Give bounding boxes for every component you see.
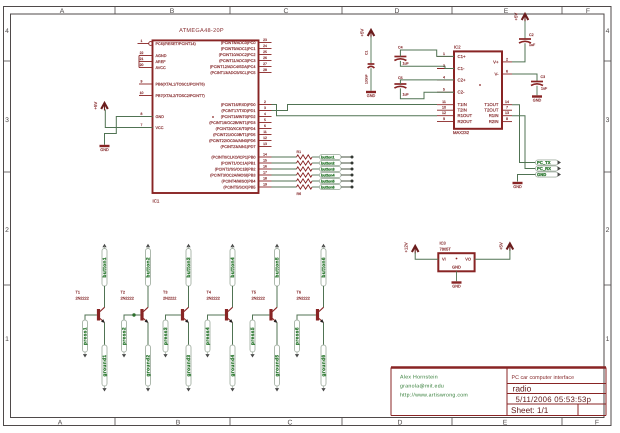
svg-text:1uF: 1uF xyxy=(403,62,410,66)
svg-text:B: B xyxy=(176,419,181,426)
svg-text:radio: radio xyxy=(513,384,532,394)
svg-text:GND: GND xyxy=(100,148,109,152)
svg-text:R1OUT: R1OUT xyxy=(458,113,473,118)
svg-text:12: 12 xyxy=(442,111,446,115)
svg-text:AVCC: AVCC xyxy=(156,66,167,70)
svg-text:C2: C2 xyxy=(529,33,534,37)
svg-text:7: 7 xyxy=(141,123,143,127)
svg-text:6: 6 xyxy=(264,124,266,128)
svg-text:14: 14 xyxy=(505,100,509,104)
svg-text:T1OUT: T1OUT xyxy=(484,102,498,107)
svg-text:8: 8 xyxy=(141,112,143,116)
svg-text:ground5: ground5 xyxy=(275,355,281,377)
svg-text:(PCINT19/OC2B/INT1)PD3: (PCINT19/OC2B/INT1)PD3 xyxy=(209,121,255,125)
svg-text:AGND: AGND xyxy=(156,54,167,58)
svg-text:19: 19 xyxy=(263,183,267,187)
svg-text:24: 24 xyxy=(263,44,267,48)
svg-text:8: 8 xyxy=(506,117,508,121)
svg-text:ground6: ground6 xyxy=(321,355,327,377)
svg-text:button5: button5 xyxy=(275,257,281,277)
svg-text:button4: button4 xyxy=(321,174,335,178)
svg-text:2N2222: 2N2222 xyxy=(163,297,176,301)
svg-text:PC_RX: PC_RX xyxy=(537,166,551,171)
svg-text:4: 4 xyxy=(606,28,610,35)
svg-text:6: 6 xyxy=(506,70,508,74)
svg-text:(PCINT11/ADC3)PC3: (PCINT11/ADC3)PC3 xyxy=(219,59,255,63)
svg-text:1uF: 1uF xyxy=(403,93,410,97)
svg-text:2: 2 xyxy=(264,100,266,104)
svg-text:button2: button2 xyxy=(321,162,335,166)
svg-text:(PCINT0/CLKO/ICP1)PB0: (PCINT0/CLKO/ICP1)PB0 xyxy=(211,155,255,159)
svg-text:1: 1 xyxy=(443,52,445,56)
svg-text:+12V: +12V xyxy=(404,242,409,252)
svg-text:2N2222: 2N2222 xyxy=(121,297,134,301)
svg-text:V+: V+ xyxy=(493,59,499,64)
svg-text:GND: GND xyxy=(156,115,165,119)
svg-text:2: 2 xyxy=(5,227,9,234)
svg-text:ground1: ground1 xyxy=(102,355,108,377)
svg-text:(PCINT5/SCK)PB5: (PCINT5/SCK)PB5 xyxy=(223,185,255,189)
svg-text:T1IN: T1IN xyxy=(458,102,467,107)
svg-text:C: C xyxy=(288,419,293,426)
svg-text:13: 13 xyxy=(263,142,267,146)
svg-text:10: 10 xyxy=(442,106,446,110)
svg-text:ground3: ground3 xyxy=(186,355,192,377)
svg-text:MAX232: MAX232 xyxy=(453,130,470,135)
svg-text:10: 10 xyxy=(140,91,144,95)
svg-text:PC car computer interface: PC car computer interface xyxy=(512,375,575,381)
svg-text:button3: button3 xyxy=(321,168,335,172)
svg-text:25: 25 xyxy=(263,50,267,54)
svg-text:(PCINT22/OC0A/AIN0)PD6: (PCINT22/OC0A/AIN0)PD6 xyxy=(209,139,255,143)
svg-text:(PCINT1/OC1A)PB1: (PCINT1/OC1A)PB1 xyxy=(221,161,256,165)
svg-text:PB6(XTAL1/TOSC1/PCINT6): PB6(XTAL1/TOSC1/PCINT6) xyxy=(156,82,206,86)
svg-text:(PCINT2/SS/OC1B)PB2: (PCINT2/SS/OC1B)PB2 xyxy=(215,167,256,171)
svg-text:AREF: AREF xyxy=(156,60,167,64)
svg-text:15: 15 xyxy=(263,159,267,163)
svg-text:C: C xyxy=(284,8,289,15)
svg-text:GND: GND xyxy=(533,99,542,103)
svg-text:(PCINT4/MISO)PB4: (PCINT4/MISO)PB4 xyxy=(222,179,256,183)
svg-text:button6: button6 xyxy=(321,257,327,277)
svg-text:13: 13 xyxy=(505,111,509,115)
svg-text:R6: R6 xyxy=(297,192,302,196)
svg-text:3: 3 xyxy=(606,117,610,124)
svg-text:button3: button3 xyxy=(186,257,192,277)
svg-text:GND: GND xyxy=(367,94,376,98)
svg-text:button5: button5 xyxy=(321,180,335,184)
svg-text:1uF: 1uF xyxy=(541,87,548,91)
svg-text:R1IN: R1IN xyxy=(489,113,499,118)
svg-text:PC6(/RESET/PCINT14): PC6(/RESET/PCINT14) xyxy=(156,42,197,46)
svg-text:E: E xyxy=(503,419,508,426)
svg-text:2: 2 xyxy=(506,57,508,61)
svg-text:5: 5 xyxy=(264,118,266,122)
svg-text:T4: T4 xyxy=(207,291,211,295)
svg-text:1: 1 xyxy=(5,336,9,343)
svg-text:A: A xyxy=(58,419,63,426)
svg-text:T3: T3 xyxy=(163,291,167,295)
svg-text:ground4: ground4 xyxy=(230,355,236,377)
svg-text:http://www.artiswrong.com: http://www.artiswrong.com xyxy=(400,393,468,399)
svg-text:3: 3 xyxy=(5,117,9,124)
svg-text:(PCINT8/ADC0)PC0: (PCINT8/ADC0)PC0 xyxy=(221,41,256,45)
svg-text:+5V: +5V xyxy=(514,13,519,21)
svg-text:press5: press5 xyxy=(250,327,256,345)
svg-text:V-: V- xyxy=(494,72,499,77)
svg-text:(PCINT13/ADC5/SCL)PC5: (PCINT13/ADC5/SCL)PC5 xyxy=(210,71,255,75)
svg-text:22: 22 xyxy=(140,51,144,55)
svg-text:28: 28 xyxy=(263,68,267,72)
svg-text:26: 26 xyxy=(263,56,267,60)
svg-text:11: 11 xyxy=(442,100,446,104)
svg-text:23: 23 xyxy=(263,38,267,42)
svg-text:(PCINT20/XCK/T0)PD4: (PCINT20/XCK/T0)PD4 xyxy=(216,127,256,131)
svg-text:(PCINT16/RXD)PD0: (PCINT16/RXD)PD0 xyxy=(221,103,256,107)
svg-text:(PCINT12/ADC4/SDA)PC4: (PCINT12/ADC4/SDA)PC4 xyxy=(210,65,256,69)
svg-text:(PCINT3/OC2A/MOSI)PB3: (PCINT3/OC2A/MOSI)PB3 xyxy=(210,173,255,177)
svg-text:7805T: 7805T xyxy=(440,247,452,252)
svg-text:5: 5 xyxy=(443,88,445,92)
svg-text:16: 16 xyxy=(263,165,267,169)
svg-text:1: 1 xyxy=(141,39,143,43)
svg-text:17: 17 xyxy=(263,171,267,175)
svg-text:4: 4 xyxy=(264,112,266,116)
svg-text:T2OUT: T2OUT xyxy=(484,108,498,113)
svg-text:ATMEGA48-20P: ATMEGA48-20P xyxy=(179,28,224,34)
svg-text:(PCINT10/ADC2)PC2: (PCINT10/ADC2)PC2 xyxy=(219,53,256,57)
svg-text:press4: press4 xyxy=(205,327,211,345)
svg-text:C1: C1 xyxy=(365,51,369,55)
svg-text:GND: GND xyxy=(452,285,461,289)
svg-text:D: D xyxy=(398,419,403,426)
svg-text:T2: T2 xyxy=(121,291,125,295)
svg-text:(PCINT23/AIN1)PD7: (PCINT23/AIN1)PD7 xyxy=(220,145,255,149)
svg-text:T5: T5 xyxy=(252,291,256,295)
svg-text:ground2: ground2 xyxy=(146,355,152,377)
svg-text:press6: press6 xyxy=(295,327,301,345)
svg-text:IC2: IC2 xyxy=(454,44,461,49)
svg-text:IC3: IC3 xyxy=(440,241,447,246)
svg-text:IC1: IC1 xyxy=(153,199,160,204)
svg-text:press1: press1 xyxy=(83,327,89,345)
svg-text:2N2222: 2N2222 xyxy=(207,297,220,301)
svg-text:C1+: C1+ xyxy=(458,54,466,59)
svg-text:C3: C3 xyxy=(541,75,546,79)
svg-text:A: A xyxy=(60,8,65,15)
svg-text:VI: VI xyxy=(442,256,446,261)
svg-text:C2-: C2- xyxy=(458,90,465,95)
svg-text:VCC: VCC xyxy=(156,126,164,130)
svg-text:2: 2 xyxy=(606,227,610,234)
svg-text:21: 21 xyxy=(140,57,144,61)
svg-text:11: 11 xyxy=(263,130,267,134)
svg-text:GND: GND xyxy=(537,172,546,177)
svg-text:press2: press2 xyxy=(122,327,128,345)
svg-text:1uF: 1uF xyxy=(529,43,536,47)
svg-text:button6: button6 xyxy=(321,186,335,190)
svg-text:4: 4 xyxy=(5,28,9,35)
svg-text:F: F xyxy=(595,419,599,426)
svg-text:Alex Hornstein: Alex Hornstein xyxy=(400,375,438,381)
svg-text:14: 14 xyxy=(263,153,267,157)
svg-text:(PCINT9/ADC1)PC1: (PCINT9/ADC1)PC1 xyxy=(221,47,256,51)
svg-text:B: B xyxy=(170,8,175,15)
svg-text:R2OUT: R2OUT xyxy=(458,119,473,124)
svg-text:(PCINT21/OC0B/T1)PD5: (PCINT21/OC0B/T1)PD5 xyxy=(213,133,255,137)
svg-text:VO: VO xyxy=(465,256,471,261)
svg-text:R1: R1 xyxy=(297,150,302,154)
svg-text:12: 12 xyxy=(263,136,267,140)
svg-text:(PCINT17/TXD)PD1: (PCINT17/TXD)PD1 xyxy=(221,109,255,113)
svg-text:button1: button1 xyxy=(321,156,335,160)
svg-text:R2IN: R2IN xyxy=(489,119,499,124)
svg-text:button4: button4 xyxy=(230,257,236,277)
svg-text:2N2222: 2N2222 xyxy=(252,297,265,301)
svg-text:E: E xyxy=(504,8,509,15)
svg-text:PB7(XTAL2/TOSC2/PCINT7): PB7(XTAL2/TOSC2/PCINT7) xyxy=(156,94,206,98)
svg-text:5/11/2006 05:53:53p: 5/11/2006 05:53:53p xyxy=(516,395,592,404)
svg-text:T1: T1 xyxy=(76,291,80,295)
svg-text:press3: press3 xyxy=(163,327,169,345)
svg-text:GND: GND xyxy=(452,265,461,270)
svg-text:GND: GND xyxy=(513,185,522,189)
svg-text:4: 4 xyxy=(443,75,445,79)
svg-text:granola@mit.edu: granola@mit.edu xyxy=(400,384,444,390)
svg-text:C4: C4 xyxy=(398,46,403,50)
svg-text:T6: T6 xyxy=(297,291,301,295)
svg-text:20: 20 xyxy=(140,63,144,67)
svg-text:1: 1 xyxy=(606,336,610,343)
svg-text:9: 9 xyxy=(141,80,143,84)
svg-text:C2+: C2+ xyxy=(458,77,466,82)
svg-text:3: 3 xyxy=(264,106,266,110)
svg-text:button1: button1 xyxy=(102,257,108,277)
svg-text:27: 27 xyxy=(263,62,267,66)
svg-text:PC_TX: PC_TX xyxy=(537,160,551,165)
svg-text:D: D xyxy=(395,8,400,15)
svg-text:F: F xyxy=(586,8,590,15)
svg-text:2N2222: 2N2222 xyxy=(297,297,310,301)
svg-text:C1-: C1- xyxy=(458,66,465,71)
svg-text:+5V: +5V xyxy=(93,102,98,110)
svg-text:18: 18 xyxy=(263,177,267,181)
svg-text:Sheet: 1/1: Sheet: 1/1 xyxy=(511,406,549,415)
svg-text:+5V: +5V xyxy=(360,29,365,37)
svg-text:T2IN: T2IN xyxy=(458,108,467,113)
svg-text:button2: button2 xyxy=(146,257,152,277)
svg-text:(PCINT18/INT0)PD2: (PCINT18/INT0)PD2 xyxy=(221,115,256,119)
svg-text:7: 7 xyxy=(506,106,508,110)
svg-text:9: 9 xyxy=(443,117,445,121)
svg-text:2N2222: 2N2222 xyxy=(76,297,89,301)
svg-text:+5V: +5V xyxy=(498,242,503,250)
svg-text:100nF: 100nF xyxy=(365,74,369,84)
